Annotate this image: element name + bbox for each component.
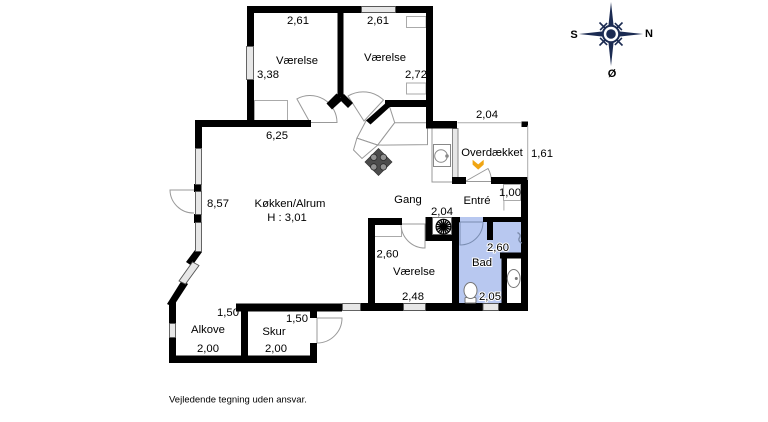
svg-text:Entré: Entré: [463, 195, 490, 207]
svg-text:2,48: 2,48: [402, 291, 424, 303]
svg-text:N: N: [645, 28, 653, 40]
svg-text:1,61: 1,61: [531, 148, 553, 160]
svg-text:Værelse: Værelse: [393, 266, 435, 278]
svg-text:2,05: 2,05: [479, 291, 501, 303]
svg-text:Overdækket: Overdækket: [461, 147, 523, 159]
svg-text:Værelse: Værelse: [276, 55, 318, 67]
svg-text:2,60: 2,60: [377, 249, 399, 261]
svg-text:2,00: 2,00: [197, 343, 219, 355]
svg-text:Værelse: Værelse: [364, 52, 406, 64]
svg-text:Bad: Bad: [472, 257, 492, 269]
svg-text:2,61: 2,61: [367, 15, 389, 27]
svg-text:Skur: Skur: [262, 326, 285, 338]
svg-text:2,00: 2,00: [265, 343, 287, 355]
svg-text:H : 3,01: H : 3,01: [267, 212, 307, 224]
svg-text:Alkove: Alkove: [191, 324, 225, 336]
svg-text:3,38: 3,38: [257, 69, 279, 81]
svg-text:Gang: Gang: [394, 194, 422, 206]
svg-text:S: S: [570, 29, 577, 41]
svg-text:2,61: 2,61: [287, 15, 309, 27]
svg-text:Vejledende tegning uden ansvar: Vejledende tegning uden ansvar.: [169, 395, 307, 406]
svg-text:2,72: 2,72: [405, 69, 427, 81]
svg-text:Ø: Ø: [608, 68, 617, 80]
svg-text:6,25: 6,25: [266, 130, 288, 142]
svg-text:Køkken/Alrum: Køkken/Alrum: [255, 198, 326, 210]
svg-text:2,04: 2,04: [431, 206, 453, 218]
svg-text:1,50: 1,50: [286, 313, 308, 325]
svg-text:8,57: 8,57: [207, 198, 229, 210]
svg-text:1,50: 1,50: [217, 307, 239, 319]
svg-text:1,00: 1,00: [499, 187, 521, 199]
svg-text:2,04: 2,04: [476, 109, 498, 121]
svg-text:2,60: 2,60: [487, 242, 509, 254]
